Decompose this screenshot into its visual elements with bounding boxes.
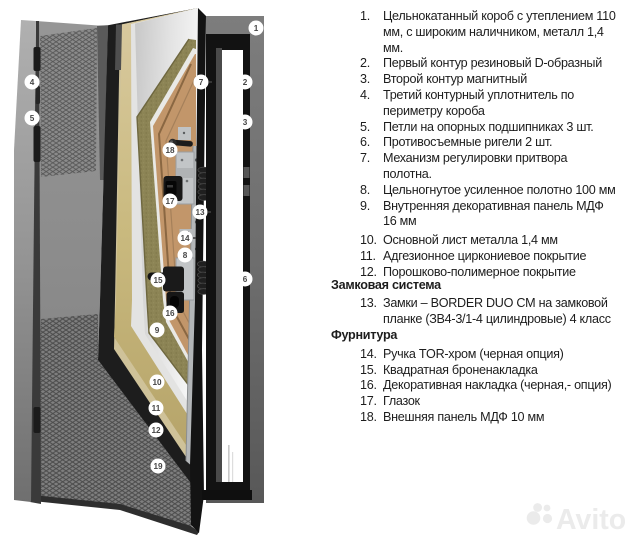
svg-text:1: 1 bbox=[254, 24, 259, 33]
svg-text:Avito: Avito bbox=[556, 504, 626, 536]
svg-text:3: 3 bbox=[243, 118, 248, 127]
svg-text:12: 12 bbox=[151, 426, 161, 435]
svg-text:18: 18 bbox=[165, 146, 175, 155]
svg-text:5: 5 bbox=[30, 114, 35, 123]
svg-text:13: 13 bbox=[195, 208, 205, 217]
svg-text:4: 4 bbox=[30, 78, 35, 87]
svg-text:15: 15 bbox=[153, 276, 163, 285]
svg-text:19: 19 bbox=[153, 462, 163, 471]
svg-text:7: 7 bbox=[199, 78, 204, 87]
svg-text:17: 17 bbox=[165, 197, 175, 206]
svg-text:10: 10 bbox=[152, 378, 162, 387]
svg-text:8: 8 bbox=[183, 251, 188, 260]
svg-text:6: 6 bbox=[243, 275, 248, 284]
svg-text:16: 16 bbox=[165, 309, 175, 318]
svg-text:2: 2 bbox=[243, 78, 248, 87]
svg-text:9: 9 bbox=[155, 326, 160, 335]
svg-text:14: 14 bbox=[180, 234, 190, 243]
svg-text:11: 11 bbox=[152, 404, 161, 413]
